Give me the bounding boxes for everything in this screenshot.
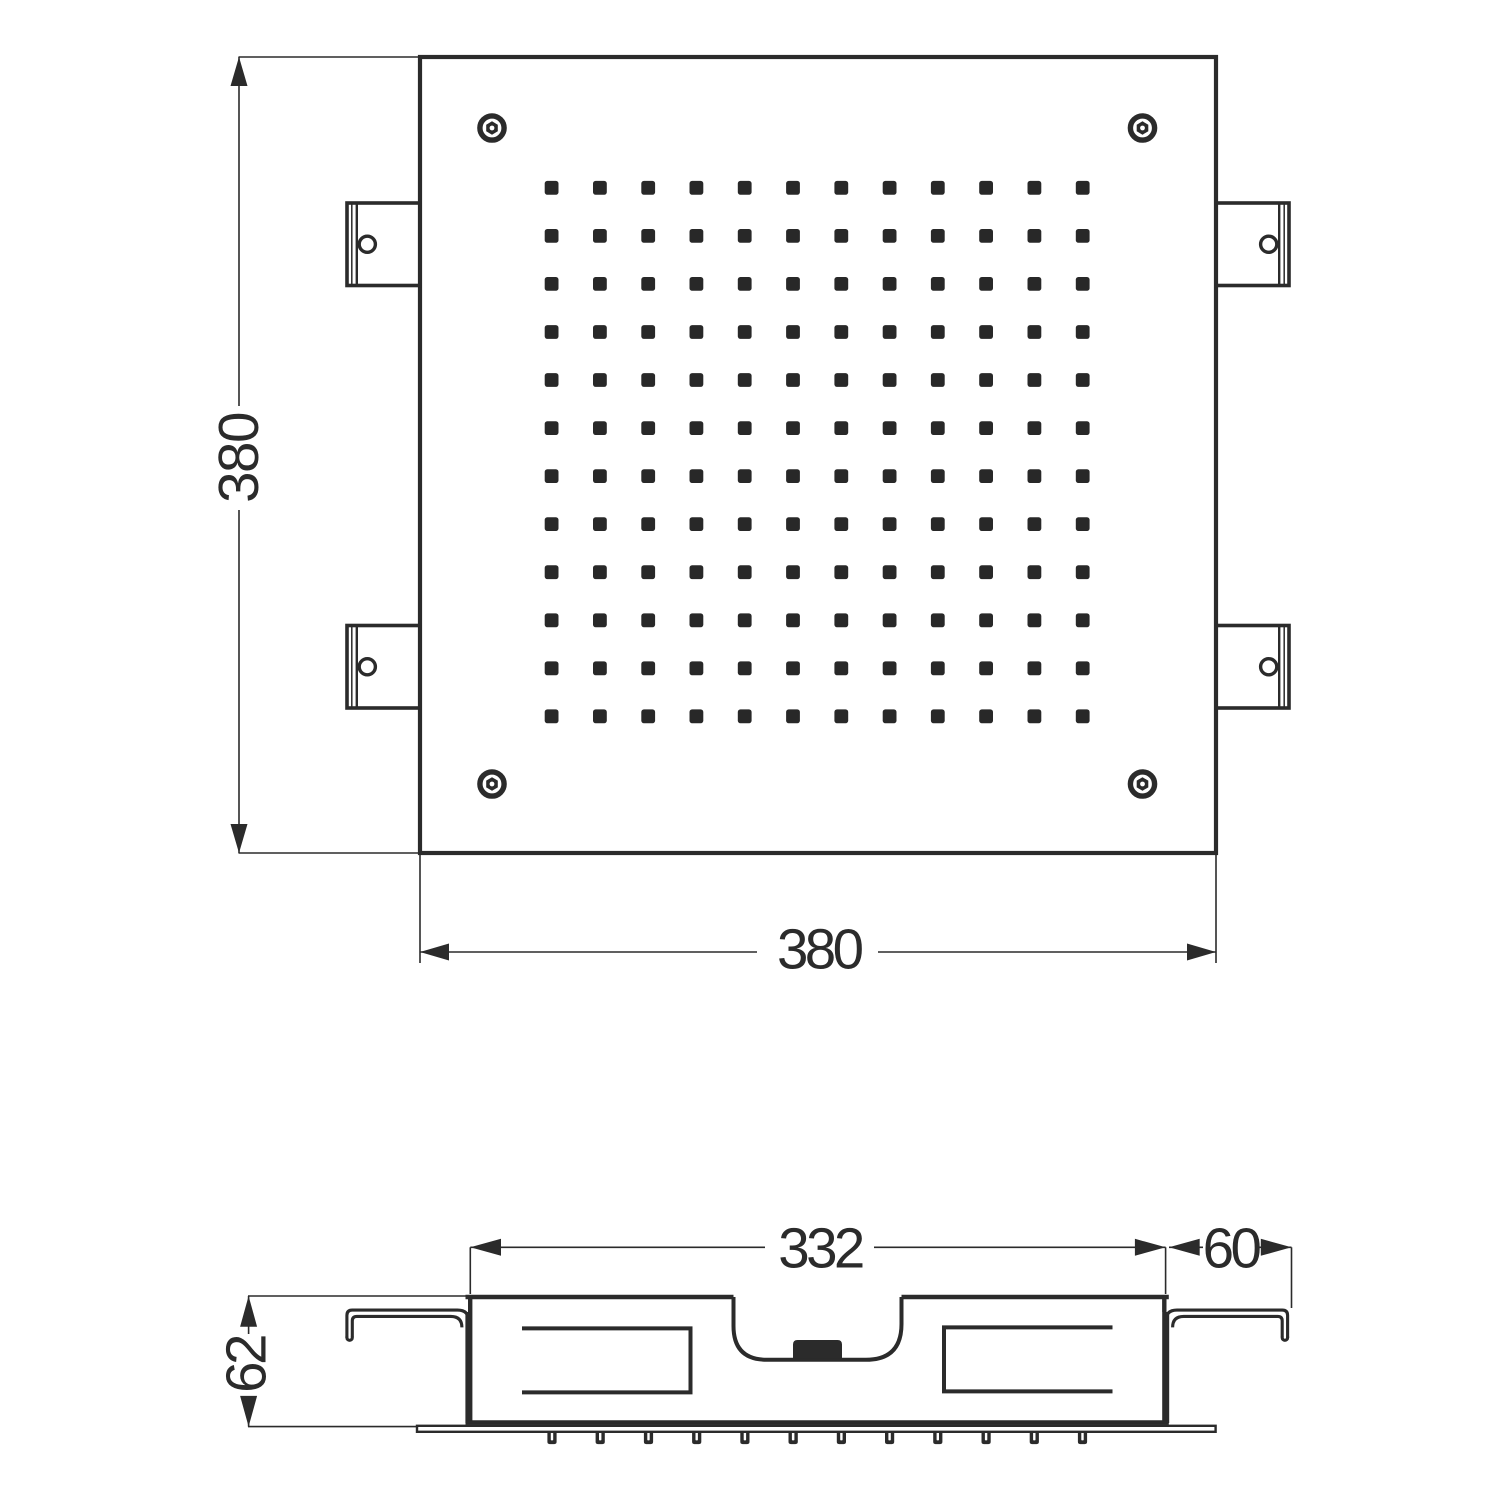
svg-text:60: 60 [1203, 1216, 1261, 1279]
svg-text:380: 380 [207, 413, 270, 503]
svg-text:380: 380 [777, 918, 863, 981]
svg-text:332: 332 [778, 1216, 863, 1279]
svg-text:62: 62 [215, 1336, 278, 1393]
